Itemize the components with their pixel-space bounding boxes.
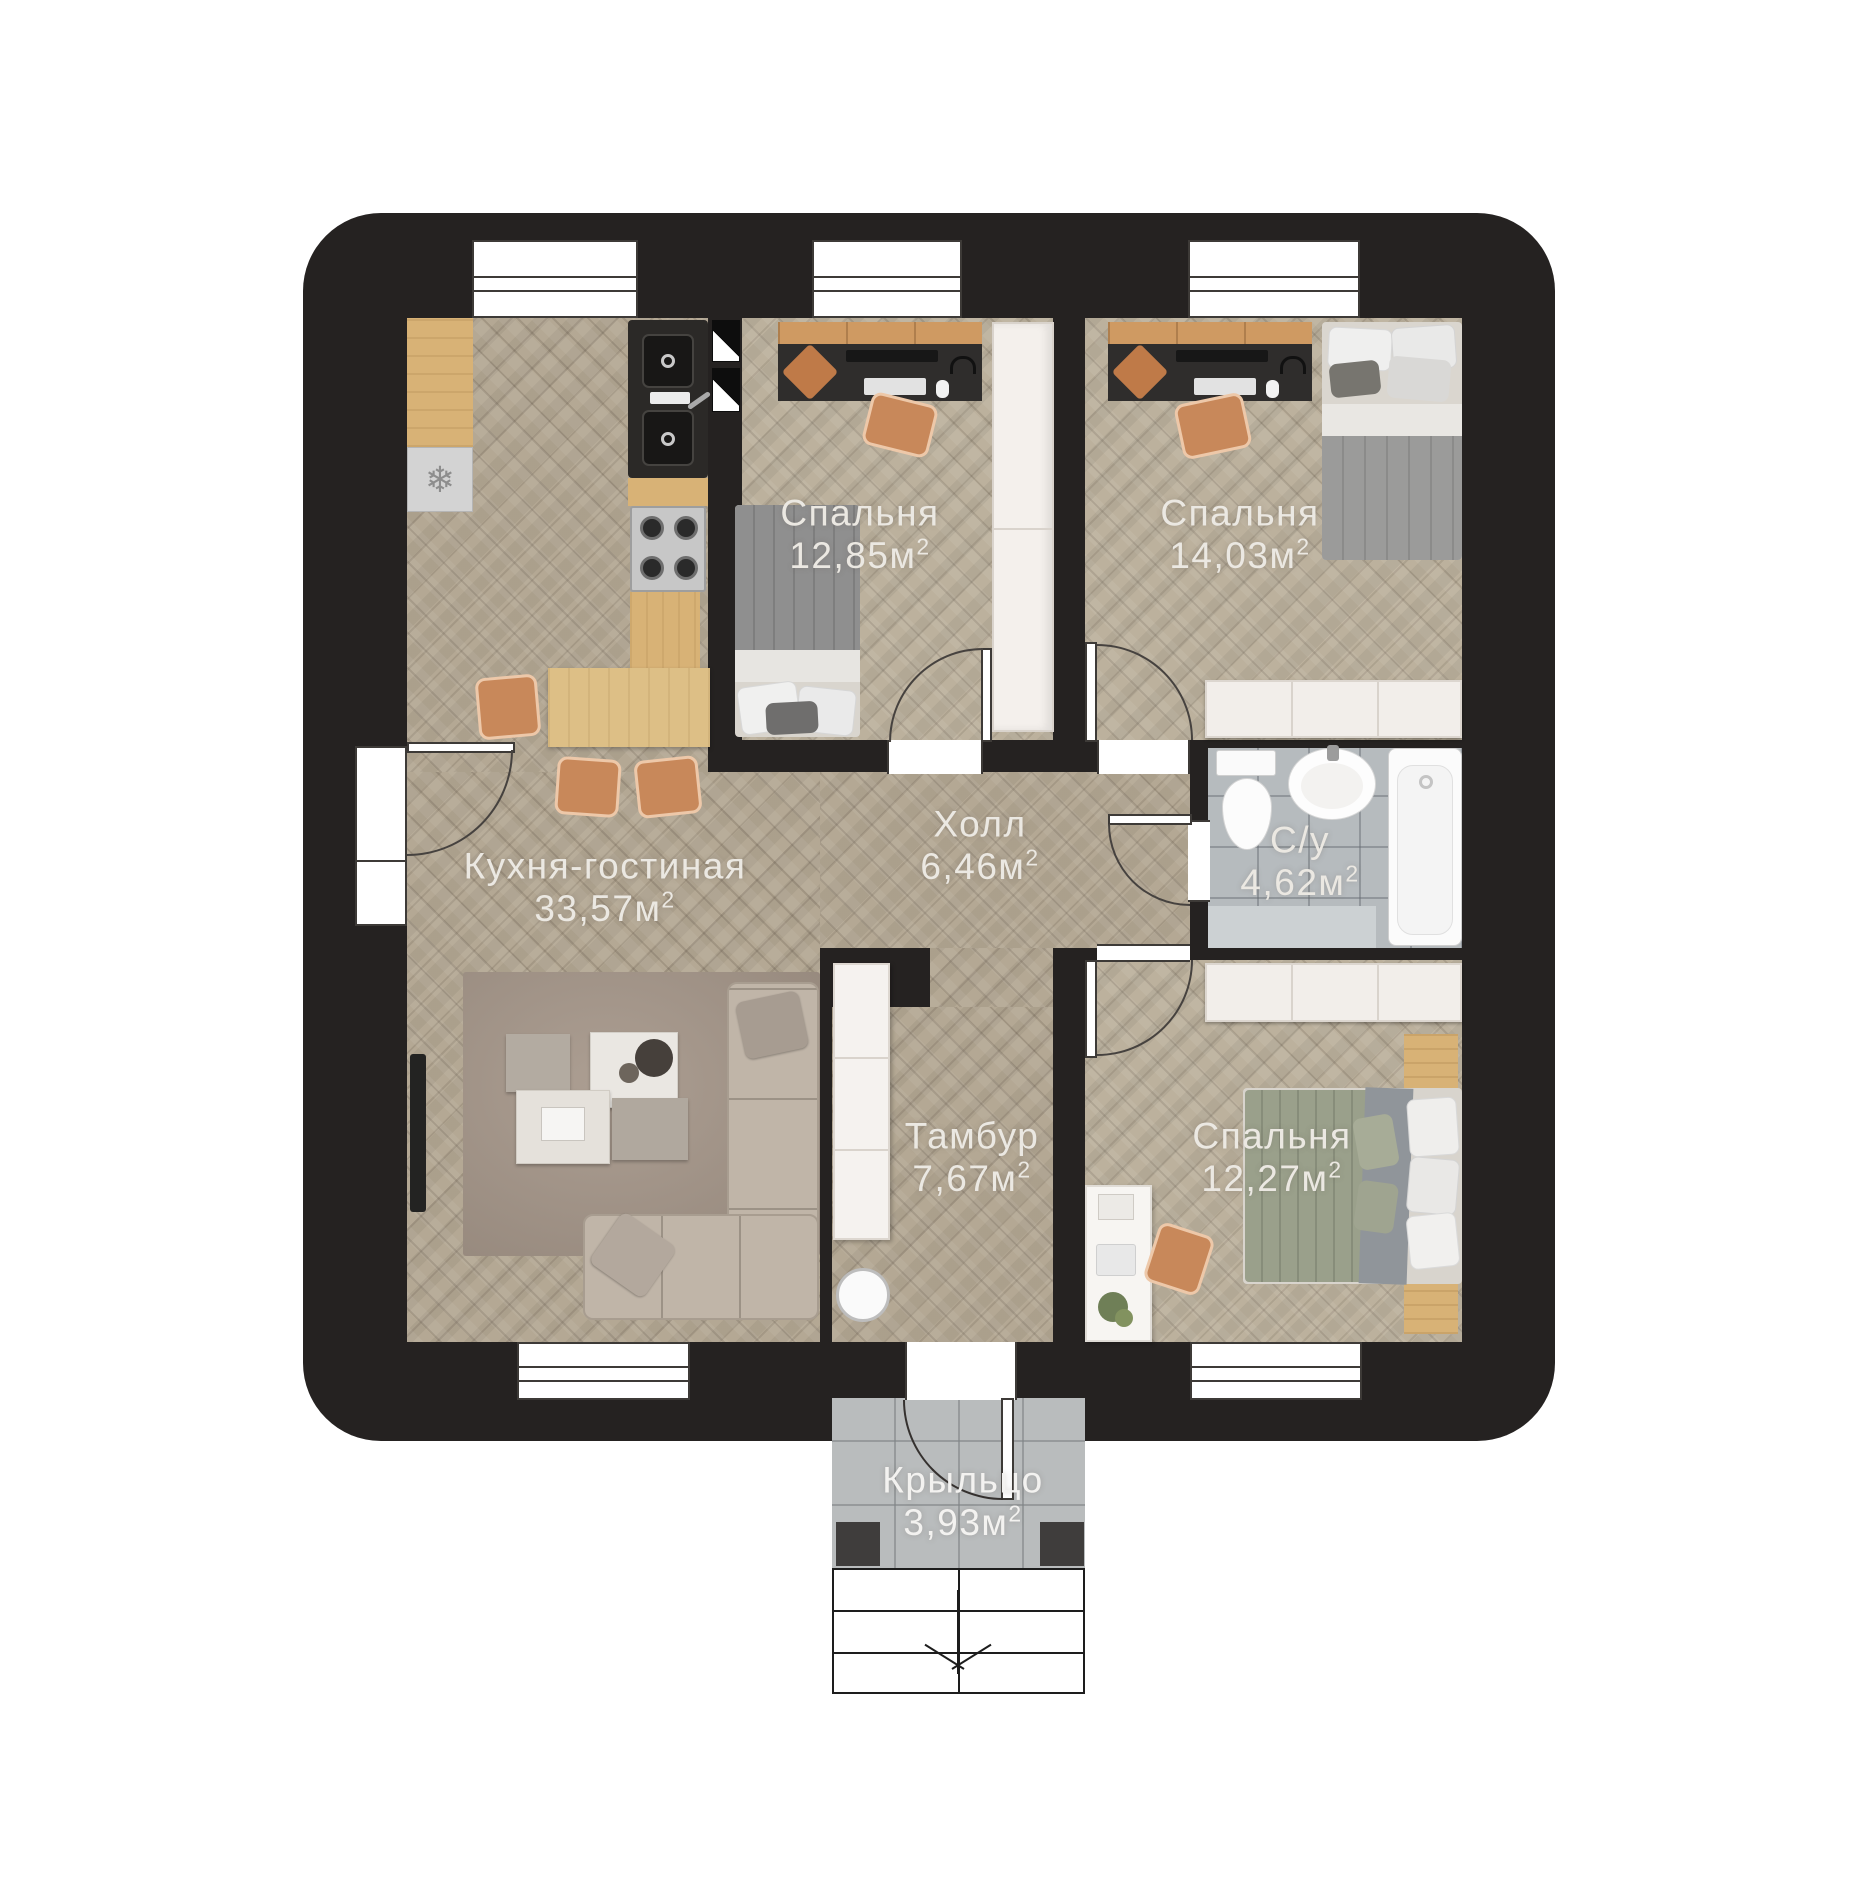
room-label-kitchen-living: Кухня-гостиная 33,57м2 — [464, 847, 747, 930]
mouse — [936, 380, 949, 398]
decor-bowl — [635, 1039, 673, 1077]
desk — [1108, 344, 1312, 401]
room-label-bedroom-1: Спальня 12,85м2 — [780, 494, 939, 577]
freezer: ❄ — [407, 447, 473, 512]
bed-pillow-dark — [765, 701, 819, 736]
toilet-tank — [1216, 750, 1276, 776]
room-area: 4,62м2 — [1240, 861, 1359, 903]
window-frame-line — [1192, 1380, 1360, 1382]
bedroom2-door-opening — [1097, 740, 1190, 774]
window-bedroom2-top — [1188, 240, 1360, 318]
french-door-opening — [355, 746, 407, 926]
nightstand — [1404, 1276, 1458, 1334]
pouf — [836, 1268, 890, 1322]
bed-sheet-fold — [735, 650, 860, 682]
bed-double — [1322, 322, 1462, 560]
kitchen-sink-unit — [628, 320, 708, 478]
window-bedroom1-top — [812, 240, 962, 318]
dresser — [1205, 963, 1462, 1022]
porch-post-left — [836, 1522, 880, 1566]
bathtub — [1388, 748, 1462, 946]
kitchen-counter-left — [407, 318, 473, 447]
sink-soap-tray — [650, 392, 690, 404]
room-area: 7,67м2 — [905, 1157, 1040, 1199]
dining-chair — [554, 756, 622, 818]
bathroom-sink — [1288, 748, 1376, 820]
bed-sheet-fold — [1322, 404, 1462, 438]
decor-cup — [619, 1063, 639, 1083]
bed-pillow — [1406, 1156, 1461, 1216]
laptop — [1096, 1244, 1136, 1276]
keyboard — [1194, 378, 1256, 395]
window-frame-line — [814, 290, 960, 292]
faucet-icon — [1327, 745, 1339, 761]
room-label-porch: Крыльцо 3,93м2 — [882, 1461, 1043, 1544]
dresser — [1205, 680, 1462, 738]
bathroom-door-opening — [1188, 820, 1210, 902]
window-frame-line — [1190, 290, 1358, 292]
room-area: 12,27м2 — [1192, 1157, 1351, 1199]
sink-drain — [661, 432, 675, 446]
wardrobe — [992, 322, 1054, 732]
dining-chair — [474, 673, 541, 740]
dresser-divider — [1377, 682, 1379, 736]
window-frame-line — [519, 1380, 688, 1382]
bed-pillow-green — [1353, 1179, 1400, 1234]
coffee-table-marble — [516, 1090, 610, 1164]
bedroom2-door-leaf — [1085, 642, 1097, 742]
monitor — [1176, 350, 1268, 362]
window-frame-line — [357, 860, 405, 862]
hall-closet — [833, 963, 890, 1240]
room-area: 12,85м2 — [780, 534, 939, 576]
bedroom1-door-opening — [887, 740, 983, 774]
bedroom3-door-leaf — [1085, 960, 1097, 1058]
mouse — [1266, 380, 1279, 398]
kitchen-counter-mid — [628, 478, 708, 506]
wardrobe-divider — [994, 528, 1052, 530]
bed-pillow — [1405, 1212, 1460, 1271]
keyboard — [864, 378, 926, 395]
room-name: С/у — [1240, 821, 1359, 862]
room-area: 14,03м2 — [1160, 534, 1319, 576]
room-name: Холл — [920, 805, 1039, 846]
desk-white — [1085, 1185, 1152, 1342]
dresser-divider — [1377, 965, 1379, 1020]
decor-book — [541, 1107, 585, 1141]
window-bedroom3-bottom — [1190, 1342, 1362, 1400]
snowflake-icon: ❄ — [425, 459, 455, 501]
closet-divider — [835, 1057, 888, 1059]
window-living-bottom — [517, 1342, 690, 1400]
room-label-bedroom-2: Спальня 14,03м2 — [1160, 494, 1319, 577]
window-frame-line — [1190, 276, 1358, 278]
room-area: 6,46м2 — [920, 845, 1039, 887]
vent-shaft-icon — [712, 320, 740, 362]
room-label-vestibule: Тамбур 7,67м2 — [905, 1117, 1040, 1200]
gas-hob — [630, 506, 706, 592]
room-name: Спальня — [1192, 1117, 1351, 1158]
mousepad — [782, 344, 839, 401]
coffee-table-cube — [612, 1098, 688, 1160]
room-area: 3,93м2 — [882, 1501, 1043, 1543]
room-name: Крыльцо — [882, 1461, 1043, 1502]
window-kitchen-top — [472, 240, 638, 318]
hob-burner — [640, 556, 664, 580]
dining-table — [548, 668, 710, 747]
bathtub-basin — [1397, 765, 1453, 935]
window-frame-line — [474, 290, 636, 292]
entry-door-opening — [905, 1342, 1017, 1400]
window-frame-line — [814, 276, 960, 278]
bed-pillow-knit — [1328, 359, 1381, 398]
sink-bowl-inner — [1301, 763, 1363, 809]
hob-burner — [640, 516, 664, 540]
room-area: 33,57м2 — [464, 887, 747, 929]
closet-divider — [835, 1149, 888, 1151]
desk-shelf — [778, 322, 982, 344]
kitchen-island-column — [630, 592, 700, 668]
mousepad — [1112, 344, 1169, 401]
window-frame-line — [519, 1366, 688, 1368]
room-name: Тамбур — [905, 1117, 1040, 1158]
tv-panel — [410, 1054, 426, 1212]
window-frame-line — [474, 276, 636, 278]
room-name: Кухня-гостиная — [464, 847, 747, 888]
nightstand — [1404, 1034, 1458, 1092]
room-name: Спальня — [1160, 494, 1319, 535]
headphones-icon — [950, 356, 976, 374]
decor-tray — [1098, 1194, 1134, 1220]
room-label-bathroom: С/у 4,62м2 — [1240, 821, 1359, 904]
room-name: Спальня — [780, 494, 939, 535]
room-label-bedroom-3: Спальня 12,27м2 — [1192, 1117, 1351, 1200]
sink-drain — [661, 354, 675, 368]
monitor — [846, 350, 938, 362]
window-frame-line — [1192, 1366, 1360, 1368]
vent-shaft-icon — [712, 368, 740, 412]
coffee-table-cube — [506, 1034, 570, 1092]
plant-icon — [1115, 1309, 1133, 1327]
dresser-divider — [1291, 682, 1293, 736]
headphones-icon — [1280, 356, 1306, 374]
floor-plan: ❄ — [0, 0, 1865, 1882]
porch-post-right — [1040, 1522, 1084, 1566]
bath-mat — [1208, 906, 1376, 948]
room-label-hall: Холл 6,46м2 — [920, 805, 1039, 888]
bed-blanket — [1322, 436, 1462, 560]
desk-shelf — [1108, 322, 1312, 344]
hob-burner — [674, 556, 698, 580]
hob-burner — [674, 516, 698, 540]
bed-pillow — [1406, 1096, 1460, 1157]
faucet-icon — [687, 391, 711, 410]
bathtub-drain — [1419, 775, 1433, 789]
dresser-divider — [1291, 965, 1293, 1020]
bed-pillow — [1386, 355, 1451, 402]
dining-chair — [633, 755, 703, 819]
floor-hall-vestibule-opening — [930, 948, 1053, 1010]
